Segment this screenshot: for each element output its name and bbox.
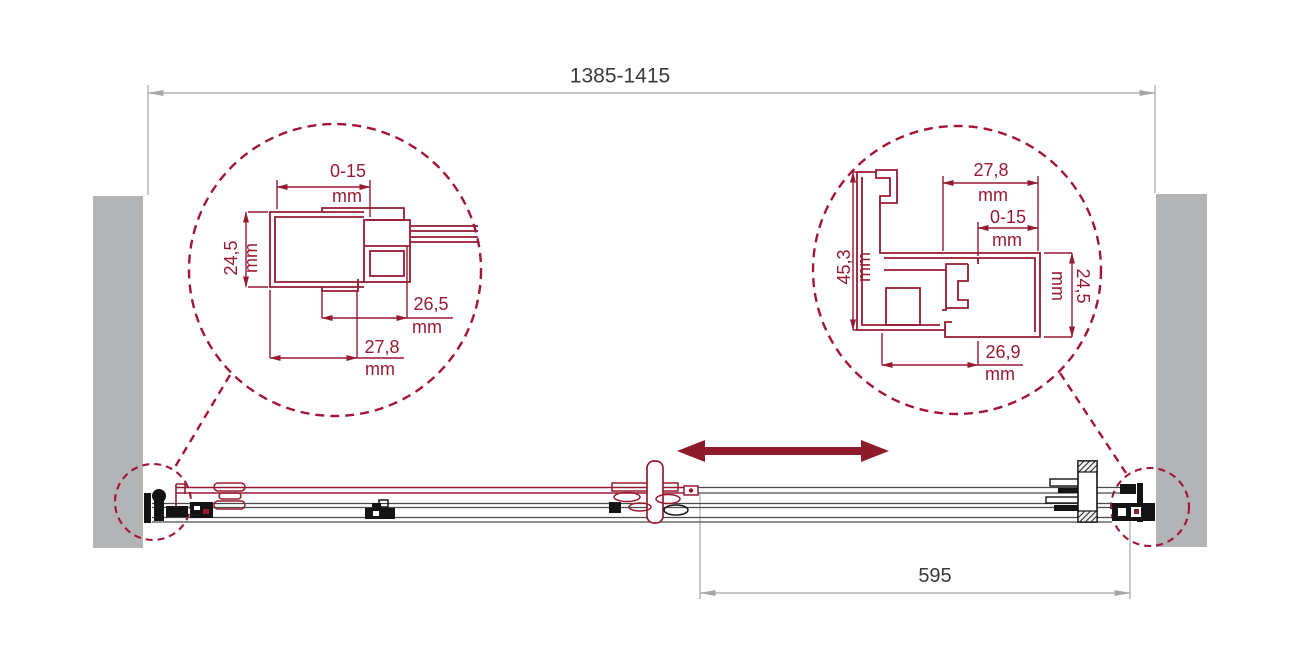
left-detail-outer-width-value: 27,8 [364, 338, 399, 356]
right-detail-side-height-unit: mm [1049, 271, 1067, 301]
door-assembly [144, 440, 1155, 523]
left-detail-inner-width-value: 26,5 [413, 295, 448, 313]
right-detail-height-value: 45,3 [835, 249, 853, 284]
right-detail-adjust-unit: mm [992, 231, 1022, 249]
left-detail-top-unit: mm [332, 187, 362, 205]
diagram-linework [0, 0, 1300, 650]
left-detail-height-unit: mm [242, 243, 260, 273]
left-detail-top-value: 0-15 [330, 162, 366, 180]
travel-dimension-label: 595 [918, 566, 951, 586]
left-detail-inner-width-unit: mm [412, 318, 442, 336]
right-wall-bracket [1112, 483, 1155, 522]
right-leader-line [1060, 373, 1126, 473]
slide-direction-arrow [677, 440, 889, 462]
right-detail-adjust-value: 0-15 [990, 208, 1026, 226]
overall-width-label: 1385-1415 [570, 66, 670, 87]
right-detail-bottom-width-value: 26,9 [985, 343, 1020, 361]
right-profile-section [857, 170, 1040, 337]
left-leader-line [175, 375, 230, 467]
technical-drawing-canvas: 1385-1415 0-15 mm 24,5 mm 26,5 mm 27,8 m… [0, 0, 1300, 650]
center-roller-mechanism [609, 461, 698, 523]
right-detail-bottom-width-unit: mm [985, 365, 1015, 383]
left-wall [93, 196, 143, 548]
right-detail-height-unit: mm [855, 252, 873, 282]
right-detail-top-width-value: 27,8 [973, 161, 1008, 179]
left-detail-height-value: 24,5 [222, 240, 240, 275]
right-detail-side-height-value: 24,5 [1074, 268, 1092, 303]
right-wall [1156, 194, 1207, 547]
right-roller-wheel [1046, 461, 1097, 522]
left-detail-outer-width-unit: mm [365, 360, 395, 378]
right-detail-top-width-unit: mm [978, 186, 1008, 204]
left-profile-section [270, 208, 478, 291]
